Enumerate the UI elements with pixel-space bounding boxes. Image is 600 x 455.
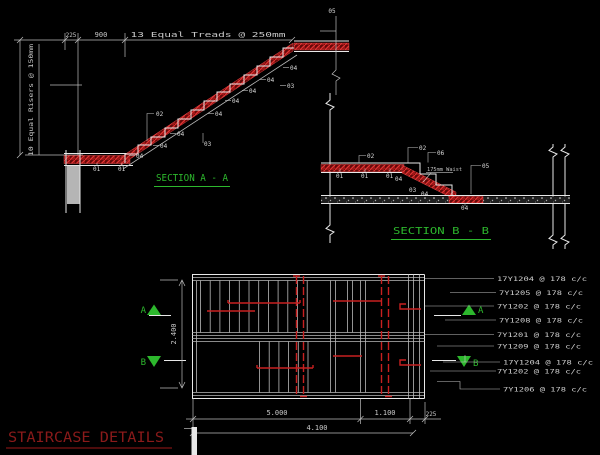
callout-8: 7Y1202 @ 178 c/c bbox=[497, 368, 581, 376]
top-landing-rebar-band bbox=[294, 43, 349, 50]
callout-1: 17Y1204 @ 178 c/c bbox=[497, 275, 587, 283]
drawing-title-text: STAIRCASE DETAILS bbox=[8, 430, 164, 446]
bar-label-04: 04 bbox=[232, 98, 240, 105]
plan-callout-leaders bbox=[425, 279, 501, 390]
marker-a-right-label: A bbox=[478, 306, 484, 316]
section-marker-a-left-icon bbox=[147, 305, 161, 316]
lower-slab-rebar-band bbox=[449, 197, 483, 204]
section-marker-b-right-icon bbox=[457, 356, 471, 367]
bar-label-01: 01 bbox=[361, 173, 369, 180]
section-a-left-dimension: 10 Equal Risers @ 150mm bbox=[17, 37, 83, 158]
callout-6: 7Y1209 @ 178 c/c bbox=[497, 343, 581, 351]
bar-label-04: 04 bbox=[160, 143, 168, 150]
marker-a-left-label: A bbox=[141, 306, 147, 316]
bar-label-06: 06 bbox=[437, 150, 445, 157]
section-marker-b-left-icon bbox=[147, 356, 161, 367]
callout-2: 7Y1205 @ 178 c/c bbox=[499, 289, 583, 297]
bar-label-05: 05 bbox=[482, 163, 490, 170]
section-b-title-text: SECTION B - B bbox=[393, 226, 489, 237]
plan-bottom-dimensions: 5.000 1.100 225 4.100 bbox=[184, 399, 441, 455]
section-b-title: SECTION B - B bbox=[391, 226, 491, 240]
dim-225-top: 225 bbox=[66, 32, 77, 39]
bar-label-02: 02 bbox=[419, 145, 427, 152]
callout-9: 7Y1206 @ 178 c/c bbox=[503, 386, 587, 394]
dim-5000: 5.000 bbox=[266, 409, 287, 417]
bar-label-02: 02 bbox=[367, 153, 375, 160]
plan-mid-band bbox=[192, 333, 425, 342]
section-a-top-landing bbox=[294, 41, 349, 52]
bar-label-04: 04 bbox=[421, 191, 429, 198]
plan-callouts: 17Y1204 @ 178 c/c 7Y1205 @ 178 c/c 7Y120… bbox=[497, 275, 593, 394]
dim-900: 900 bbox=[95, 31, 108, 39]
bar-label-05: 05 bbox=[328, 8, 336, 15]
bar-label-04: 04 bbox=[395, 176, 403, 183]
callout-3: 7Y1202 @ 178 c/c bbox=[497, 303, 581, 311]
section-b-lower-slab bbox=[321, 196, 570, 204]
bar-label-04: 04 bbox=[177, 131, 185, 138]
plan-lower-flight-treads bbox=[260, 342, 309, 393]
plan-upper-flight-treads bbox=[201, 281, 308, 333]
section-a-title-text: SECTION A - A bbox=[156, 173, 228, 184]
bottom-landing-rebar-band bbox=[64, 156, 130, 164]
bar-label-04: 04 bbox=[249, 88, 257, 95]
dim-1100: 1.100 bbox=[374, 409, 395, 417]
section-a-title: SECTION A - A bbox=[154, 173, 230, 187]
plan-left-dimension: 2.400 bbox=[160, 280, 185, 388]
marker-b-left-label: B bbox=[141, 358, 146, 368]
bar-label-01: 01 bbox=[336, 173, 344, 180]
callout-4: 7Y1208 @ 178 c/c bbox=[499, 317, 583, 325]
dim-2400: 2.400 bbox=[170, 323, 178, 344]
wall-fill bbox=[67, 166, 80, 204]
bar-label-01: 01 bbox=[118, 166, 126, 173]
callout-5: 7Y1201 @ 178 c/c bbox=[497, 331, 581, 339]
plan-view: A B A B 2.400 bbox=[141, 275, 594, 455]
risers-note: 10 Equal Risers @ 150mm bbox=[28, 43, 35, 156]
dim-225-plan: 225 bbox=[426, 411, 437, 418]
bar-label-02: 02 bbox=[156, 111, 164, 118]
section-a-break-line bbox=[320, 16, 340, 95]
section-b-view: 01 01 01 02 02 06 05 04 03 04 04 175mm W… bbox=[321, 93, 570, 249]
cad-canvas: 225 900 13 Equal Treads @ 250mm 10 Equal… bbox=[0, 0, 600, 455]
lower-slab-concrete bbox=[321, 197, 570, 204]
plan-well-lines bbox=[331, 281, 366, 393]
callout-7: 17Y1204 @ 178 c/c bbox=[503, 359, 593, 367]
bar-label-04: 04 bbox=[215, 111, 223, 118]
waist-soffit-line bbox=[123, 55, 297, 169]
section-b-upper-slab bbox=[321, 163, 404, 173]
bar-label-04: 04 bbox=[267, 77, 275, 84]
treads-note: 13 Equal Treads @ 250mm bbox=[131, 31, 286, 39]
bar-label-01: 01 bbox=[386, 173, 394, 180]
bar-label-01: 01 bbox=[93, 166, 101, 173]
wall-end-fill bbox=[192, 427, 198, 455]
staircase-drawing: 225 900 13 Equal Treads @ 250mm 10 Equal… bbox=[0, 0, 600, 455]
dim-4100: 4.100 bbox=[306, 424, 327, 432]
bar-label-03: 03 bbox=[409, 187, 417, 194]
upper-slab-rebar-band bbox=[321, 165, 404, 172]
marker-b-right-label: B bbox=[473, 359, 478, 369]
bar-label-03: 03 bbox=[287, 83, 295, 90]
bar-label-04: 04 bbox=[290, 65, 298, 72]
bar-label-04: 04 bbox=[461, 205, 469, 212]
bar-label-03: 03 bbox=[204, 141, 212, 148]
bar-label-04: 04 bbox=[136, 153, 144, 160]
section-a-view: 225 900 13 Equal Treads @ 250mm 10 Equal… bbox=[14, 8, 349, 213]
drawing-title: STAIRCASE DETAILS bbox=[6, 430, 172, 448]
